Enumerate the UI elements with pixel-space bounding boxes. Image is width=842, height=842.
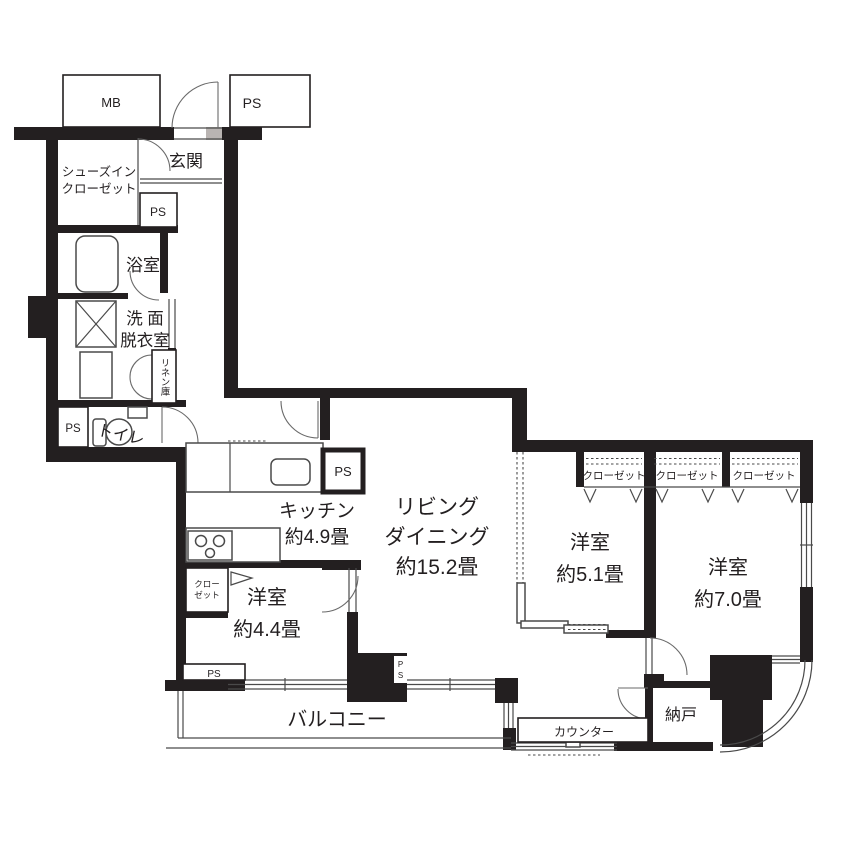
label-closet-2: クローゼット (656, 470, 719, 482)
label-small-closet-2: ゼット (194, 590, 220, 600)
label-living-2: ダイニング (385, 526, 490, 549)
label-ps-kitchen: PS (334, 464, 352, 479)
label-bath: 浴室 (126, 256, 160, 275)
label-bed51-1: 洋室 (570, 531, 610, 554)
label-ps-block-p: P (398, 660, 403, 669)
label-meter-box: MB (101, 95, 121, 110)
label-shoes-closet-2: クローゼット (61, 182, 136, 196)
label-ps-toilet: PS (65, 423, 81, 435)
label-shoes-closet-1: シューズイン (62, 164, 136, 179)
floor-plan-svg: MB PS 玄関 シューズイン クローゼット PS 浴室 洗 面 脱衣室 リネン… (0, 0, 842, 842)
kitchen-counter (186, 443, 323, 492)
label-washroom-1: 洗 面 (126, 309, 164, 328)
label-kitchen-1: キッチン (279, 501, 355, 522)
label-ps-balcony: PS (207, 669, 221, 680)
label-living-3: 約15.2畳 (396, 556, 479, 579)
kitchen-sink (271, 459, 310, 485)
label-small-closet-1: クロー (194, 579, 220, 589)
label-living-1: リビング (395, 496, 479, 519)
floor-plan: MB PS 玄関 シューズイン クローゼット PS 浴室 洗 面 脱衣室 リネン… (0, 0, 842, 842)
label-ps-top: PS (243, 95, 262, 111)
labels: MB PS 玄関 シューズイン クローゼット PS 浴室 洗 面 脱衣室 リネン… (61, 95, 795, 739)
label-closet-3: クローゼット (733, 470, 796, 482)
label-storage: 納戸 (665, 706, 697, 724)
label-ps-entrance: PS (150, 205, 166, 219)
label-washroom-2: 脱衣室 (120, 331, 170, 350)
doors (130, 82, 687, 719)
vanity (80, 352, 112, 398)
stove-counter (186, 528, 280, 562)
bathtub (76, 236, 118, 292)
label-linen: リネン庫 (159, 358, 171, 397)
label-kitchen-2: 約4.9畳 (285, 526, 349, 548)
label-genkan: 玄関 (169, 152, 203, 171)
label-bed70-2: 約7.0畳 (694, 588, 762, 611)
label-bed70-1: 洋室 (708, 556, 748, 579)
label-bed44-1: 洋室 (247, 586, 287, 609)
label-bed51-2: 約5.1畳 (556, 563, 624, 586)
label-ps-block-s: S (398, 671, 403, 680)
label-balcony: バルコニー (287, 709, 387, 731)
washing-machine (76, 301, 116, 347)
label-bed44-2: 約4.4畳 (233, 618, 301, 641)
label-closet-1: クローゼット (583, 470, 646, 482)
label-counter: カウンター (554, 725, 614, 739)
